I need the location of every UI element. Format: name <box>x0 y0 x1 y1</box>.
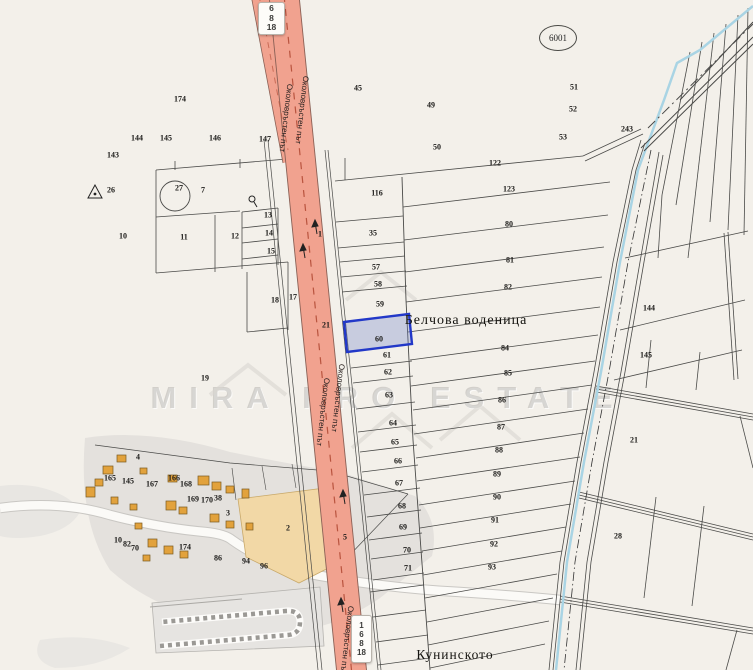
parcel-label: 96 <box>260 562 268 571</box>
parcel-label: 91 <box>491 516 499 525</box>
parcel-label: 144 <box>131 134 143 143</box>
parcel-label: 82 <box>123 540 131 549</box>
parcel-label: 51 <box>570 83 578 92</box>
parcel-label: 62 <box>384 368 392 377</box>
parcel-label: 1 <box>318 230 322 239</box>
parcel-label: 10 <box>119 232 127 241</box>
parcel-label: 174 <box>174 95 186 104</box>
parcel-label: 15 <box>267 247 275 256</box>
parcel-label: 147 <box>259 135 271 144</box>
parcel-label: 89 <box>493 470 501 479</box>
road-ref-number: 6001 <box>549 33 567 43</box>
parcel-label: 71 <box>404 564 412 573</box>
parcel-label: 2 <box>286 524 290 533</box>
parcel-label: 92 <box>490 540 498 549</box>
parcel-label: 93 <box>488 563 496 572</box>
parcel-label: 10 <box>114 536 122 545</box>
parcel-label: 86 <box>498 396 506 405</box>
parcel-label: 63 <box>385 391 393 400</box>
parcel-label: 38 <box>214 494 222 503</box>
parcel-label: 12 <box>231 232 239 241</box>
parcel-label: 116 <box>371 189 383 198</box>
parcel-label: 3 <box>226 509 230 518</box>
route-badge-bottom: 16818 <box>351 615 372 663</box>
parcel-label: 49 <box>427 101 435 110</box>
parcel-label: 169 <box>187 495 199 504</box>
parcel-label: 14 <box>265 229 273 238</box>
place-label: Белчова воденица <box>405 313 528 329</box>
parcel-label: 146 <box>209 134 221 143</box>
parcel-label: 52 <box>569 105 577 114</box>
parcel-label: 145 <box>640 351 652 360</box>
parcel-label: 167 <box>146 480 158 489</box>
parcel-label: 57 <box>372 263 380 272</box>
parcel-label: 35 <box>369 229 377 238</box>
parcel-label: 81 <box>506 256 514 265</box>
parcel-label: 94 <box>242 557 250 566</box>
parcel-label: 70 <box>131 544 139 553</box>
parcel-label: 166 <box>168 474 180 483</box>
parcel-label: 88 <box>495 446 503 455</box>
parcel-label: 5 <box>343 533 347 542</box>
parcel-label: 170 <box>201 496 213 505</box>
parcel-label: 17 <box>289 293 297 302</box>
route-number: 18 <box>357 648 366 657</box>
map-canvas: MIRA PRO ESTATE <box>0 0 753 670</box>
parcel-label: 60 <box>375 335 383 344</box>
parcel-label: 11 <box>180 233 188 242</box>
road-name-label: Околовръстен път <box>330 363 347 432</box>
route-badge-top: 6818 <box>258 2 285 35</box>
road-ref-badge: 6001 <box>539 25 577 51</box>
parcel-label: 123 <box>503 185 515 194</box>
parcel-label: 21 <box>630 436 638 445</box>
parcel-label: 87 <box>497 423 505 432</box>
parcel-label: 144 <box>643 304 655 313</box>
parcel-label: 18 <box>271 296 279 305</box>
road-name-label: Околовръстен път <box>278 83 295 152</box>
parcel-label: 65 <box>391 438 399 447</box>
route-number: 18 <box>267 23 276 33</box>
parcel-label: 21 <box>322 321 330 330</box>
parcel-label: 58 <box>374 280 382 289</box>
parcel-label: 80 <box>505 220 513 229</box>
parcel-label: 59 <box>376 300 384 309</box>
place-label: Кунинското <box>416 647 493 663</box>
parcel-label: 61 <box>383 351 391 360</box>
parcel-label: 90 <box>493 493 501 502</box>
parcel-label: 143 <box>107 151 119 160</box>
parcel-label: 243 <box>621 125 633 134</box>
parcel-label: 70 <box>403 546 411 555</box>
parcel-label: 86 <box>214 554 222 563</box>
parcel-label: 84 <box>501 344 509 353</box>
route-number: 8 <box>359 639 363 648</box>
parcel-label: 145 <box>160 134 172 143</box>
parcel-label: 66 <box>394 457 402 466</box>
parcel-label: 45 <box>354 84 362 93</box>
parcel-label: 67 <box>395 479 403 488</box>
parcel-label: 85 <box>504 369 512 378</box>
parcel-label: 26 <box>107 186 115 195</box>
parcel-label: 168 <box>180 480 192 489</box>
parcel-label: 53 <box>559 133 567 142</box>
road-name-label: Околовръстен път <box>294 75 311 144</box>
parcel-label: 19 <box>201 374 209 383</box>
parcel-label: 68 <box>398 502 406 511</box>
parcel-label: 69 <box>399 523 407 532</box>
road-name-label: Околовръстен път <box>315 377 332 446</box>
parcel-label: 122 <box>489 159 501 168</box>
parcel-label: 145 <box>122 477 134 486</box>
route-number: 1 <box>359 621 363 630</box>
parcel-label: 174 <box>179 543 191 552</box>
parcel-label: 27 <box>175 184 183 193</box>
parcel-label: 64 <box>389 419 397 428</box>
parcel-label: 13 <box>264 211 272 220</box>
parcel-label: 4 <box>136 453 140 462</box>
parcel-label: 28 <box>614 532 622 541</box>
labels-layer: 4549501741441451461471435152532431221231… <box>0 0 753 670</box>
parcel-label: 165 <box>104 474 116 483</box>
parcel-label: 50 <box>433 143 441 152</box>
parcel-label: 82 <box>504 283 512 292</box>
parcel-label: 7 <box>201 186 205 195</box>
route-number: 6 <box>359 630 363 639</box>
